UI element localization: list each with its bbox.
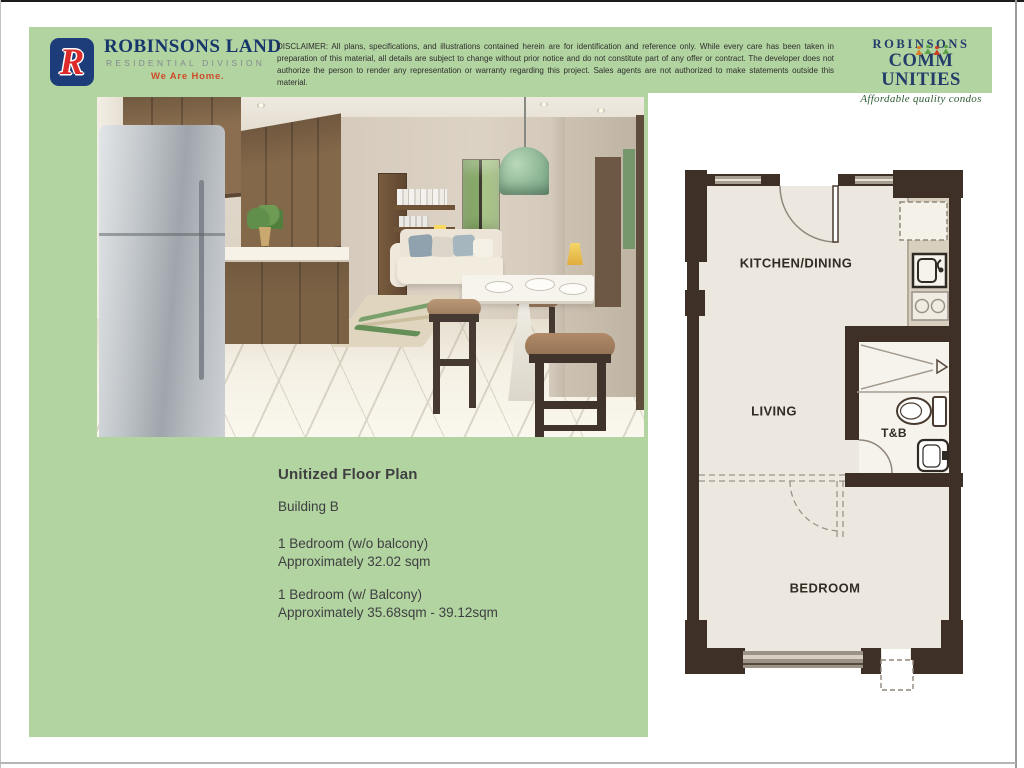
person-icon — [924, 45, 931, 54]
sofa-pillow — [431, 236, 454, 257]
unit-option-1-name: 1 Bedroom (w/o balcony) — [278, 536, 598, 551]
disclaimer-text: DISCLAIMER: All plans, specifications, a… — [277, 41, 834, 89]
robinsons-communities-logo: ROBINSONS COMMUNITIES Affordable quality… — [851, 37, 991, 105]
unit-interior-photo — [97, 97, 644, 437]
page-top-edge — [0, 0, 1024, 2]
label-kitchen-dining: KITCHEN/DINING — [740, 256, 853, 271]
communities-line2: COMMUNITIES — [851, 52, 991, 91]
brand-name: ROBINSONS LAND — [104, 36, 282, 58]
person-icon — [933, 46, 940, 55]
page-left-edge — [0, 0, 1, 768]
pendant-lamp — [499, 147, 551, 195]
plate — [559, 283, 587, 295]
right-edge-column — [636, 115, 644, 410]
kitchen-counter — [225, 247, 349, 262]
brand-tagline: We Are Home. — [151, 71, 224, 82]
mirror-door-reflection — [595, 157, 621, 307]
downlight-icon — [540, 102, 548, 107]
shelf-books — [399, 216, 429, 227]
unit-option-1-area: Approximately 32.02 sqm — [278, 554, 598, 569]
unit-building: Building B — [278, 499, 598, 514]
robinsons-land-logo: R — [50, 38, 94, 86]
unit-title: Unitized Floor Plan — [278, 466, 598, 483]
plant-leaves — [247, 205, 283, 229]
page-bottom-edge — [0, 762, 1016, 764]
plate — [525, 278, 555, 291]
unit-option-2-area: Approximately 35.68sqm - 39.12sqm — [278, 605, 598, 620]
logo-r-icon: R — [60, 44, 85, 81]
refrigerator — [99, 125, 225, 437]
pendant-cord — [524, 97, 526, 149]
sofa-pillow — [408, 234, 434, 258]
upper-cabinets-right — [241, 113, 341, 267]
person-icon — [915, 46, 922, 55]
plate — [485, 281, 513, 293]
label-bedroom: BEDROOM — [790, 581, 861, 596]
brand-division: RESIDENTIAL DIVISION — [106, 58, 265, 68]
label-tnb: T&B — [881, 426, 907, 440]
communities-tagline: Affordable quality condos — [851, 93, 991, 105]
page-right-edge — [1015, 0, 1017, 768]
wall-shelf — [393, 205, 455, 210]
brochure-page: R ROBINSONS LAND RESIDENTIAL DIVISION We… — [0, 0, 1024, 768]
unit-option-2-name: 1 Bedroom (w/ Balcony) — [278, 587, 598, 602]
wall-artwork — [462, 159, 500, 237]
unit-info: Unitized Floor Plan Building B 1 Bedroom… — [278, 466, 598, 638]
downlight-icon — [257, 103, 265, 108]
mirror-art-reflection — [623, 149, 635, 249]
floorplan-drawing — [685, 170, 963, 692]
person-icon — [942, 45, 949, 54]
mirror-lamp-reflection — [567, 243, 583, 265]
shelf-books — [397, 189, 447, 205]
fridge-handle — [199, 180, 204, 380]
label-living: LIVING — [751, 404, 797, 419]
sofa-pillow — [473, 239, 493, 257]
downlight-icon — [597, 108, 605, 113]
lower-cabinets — [225, 262, 349, 344]
floorplan: KITCHEN/DINING LIVING T&B BEDROOM — [685, 170, 963, 692]
